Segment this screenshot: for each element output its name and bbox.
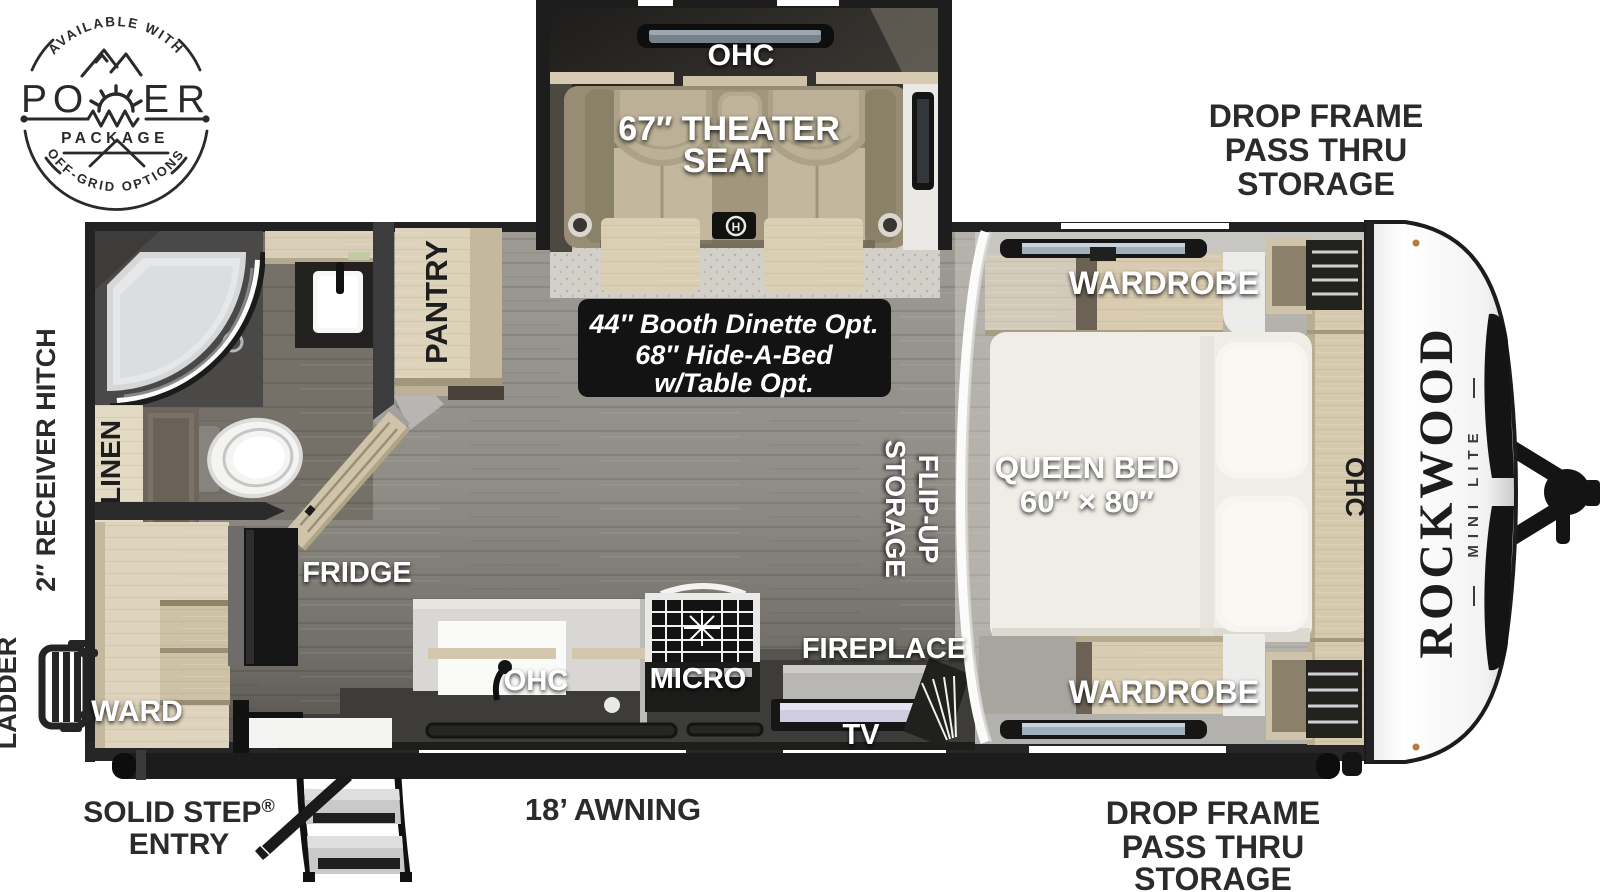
svg-text:PASS THRU: PASS THRU: [1225, 132, 1408, 168]
svg-text:FLIP-UP: FLIP-UP: [913, 455, 944, 564]
svg-text:R: R: [177, 78, 205, 121]
svg-text:DROP FRAME: DROP FRAME: [1209, 98, 1424, 134]
svg-text:SEAT: SEAT: [683, 142, 771, 180]
svg-text:OHC: OHC: [708, 39, 775, 72]
svg-text:FRIDGE: FRIDGE: [302, 557, 412, 589]
svg-text:2″ RECEIVER HITCH: 2″ RECEIVER HITCH: [31, 328, 61, 591]
svg-text:18’ AWNING: 18’ AWNING: [525, 792, 701, 827]
svg-text:LADDER: LADDER: [0, 637, 22, 750]
svg-text:WARD: WARD: [91, 695, 183, 728]
svg-text:68″ Hide-A-Bed: 68″ Hide-A-Bed: [635, 340, 833, 370]
svg-text:WARDROBE: WARDROBE: [1069, 674, 1259, 710]
svg-text:STORAGE: STORAGE: [1134, 861, 1292, 892]
svg-text:WARDROBE: WARDROBE: [1069, 265, 1259, 301]
svg-text:60″ × 80″: 60″ × 80″: [1020, 484, 1154, 519]
svg-text:PANTRY: PANTRY: [419, 240, 454, 364]
svg-text:QUEEN BED: QUEEN BED: [995, 450, 1179, 485]
svg-text:FIREPLACE: FIREPLACE: [802, 633, 966, 665]
svg-text:P: P: [21, 78, 47, 121]
svg-text:PACKAGE: PACKAGE: [61, 130, 169, 147]
svg-text:ROCKWOOD: ROCKWOOD: [1410, 325, 1463, 658]
svg-text:OHC: OHC: [1340, 457, 1370, 517]
svg-text:DROP FRAME: DROP FRAME: [1106, 795, 1321, 831]
svg-text:LINEN: LINEN: [95, 420, 126, 504]
svg-text:ENTRY: ENTRY: [129, 828, 230, 861]
svg-text:MICRO: MICRO: [650, 663, 747, 695]
svg-text:H: H: [732, 220, 741, 234]
svg-text:SOLID STEP®: SOLID STEP®: [83, 796, 275, 829]
svg-text:PASS THRU: PASS THRU: [1122, 829, 1305, 865]
svg-text:OHC: OHC: [504, 665, 569, 697]
svg-text:O: O: [53, 78, 83, 121]
svg-text:TV: TV: [842, 719, 880, 751]
svg-text:MINI LITE: MINI LITE: [1465, 426, 1482, 557]
svg-text:w/Table Opt.: w/Table Opt.: [654, 368, 814, 398]
svg-text:44″ Booth Dinette Opt.: 44″ Booth Dinette Opt.: [589, 309, 879, 339]
svg-text:STORAGE: STORAGE: [880, 440, 911, 578]
svg-text:STORAGE: STORAGE: [1237, 166, 1395, 202]
svg-text:E: E: [143, 78, 169, 121]
